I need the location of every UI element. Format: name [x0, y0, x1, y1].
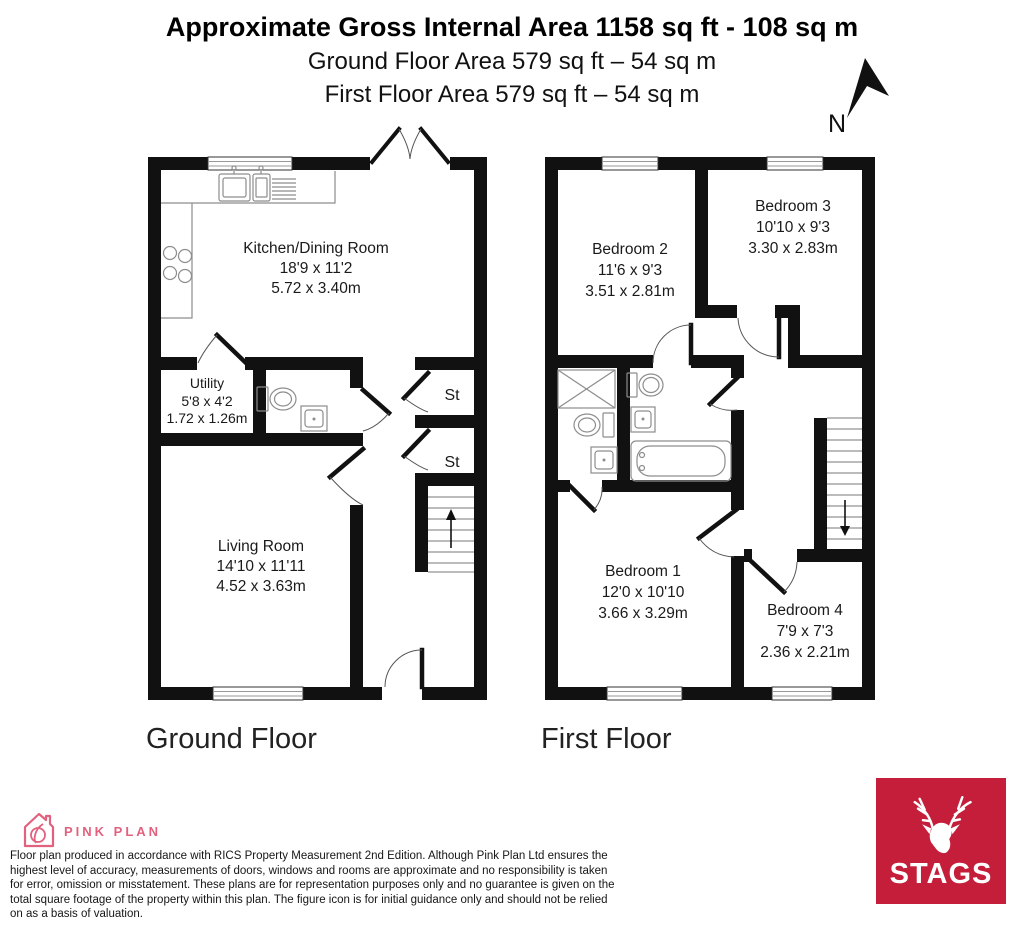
bedroom2-imperial-dims: 11'6 x 9'3 [598, 262, 662, 279]
bedroom2-room-label: Bedroom 2 [592, 241, 668, 258]
stag-head-icon [900, 784, 982, 858]
ground-doors [198, 129, 448, 687]
first-floor-caption: First Floor [541, 723, 672, 755]
shower-icon [558, 370, 615, 408]
bedroom4-room-label: Bedroom 4 [767, 602, 843, 619]
bedroom4-metric-dims: 2.36 x 2.21m [760, 644, 850, 661]
utility-room-label: Utility [190, 375, 224, 391]
disclaimer-text: Floor plan produced in accordance with R… [10, 849, 616, 922]
shower-room-toilet-icon [574, 413, 614, 437]
ground-floor-caption: Ground Floor [146, 723, 317, 755]
kitchen-sink [219, 166, 296, 201]
stags-logo: STAGS [876, 778, 1006, 904]
shower-room-basin-icon [591, 447, 617, 473]
ground-floor-plan: Kitchen/Dining Room 18'9 x 11'2 5.72 x 3… [140, 120, 505, 765]
bedroom3-room-label: Bedroom 3 [755, 198, 831, 215]
bathroom-toilet-icon [627, 373, 663, 397]
bedroom1-room-label: Bedroom 1 [605, 563, 681, 580]
ground-walls [148, 157, 487, 700]
first-floor-plan: Bedroom 2 11'6 x 9'3 3.51 x 2.81m Bedroo… [538, 120, 885, 765]
utility-imperial-dims: 5'8 x 4'2 [181, 393, 232, 409]
pink-plan-brand: PINK PLAN [64, 824, 161, 839]
kitchen-imperial-dims: 18'9 x 11'2 [280, 260, 353, 277]
kitchen-room-label: Kitchen/Dining Room [243, 240, 389, 257]
kitchen-metric-dims: 5.72 x 3.40m [271, 280, 361, 297]
stags-wordmark: STAGS [890, 858, 993, 891]
living-room-label: Living Room [218, 538, 304, 555]
living-metric-dims: 4.52 x 3.63m [216, 578, 306, 595]
pink-plan-house-icon [20, 810, 58, 850]
bedroom4-imperial-dims: 7'9 x 7'3 [777, 623, 834, 640]
ground-stairs [428, 497, 474, 572]
page-title: Approximate Gross Internal Area 1158 sq … [0, 12, 1024, 43]
wc-basin-icon [301, 406, 327, 431]
first-stairs [827, 418, 862, 539]
bedroom3-metric-dims: 3.30 x 2.83m [748, 240, 838, 257]
living-imperial-dims: 14'10 x 11'11 [217, 558, 306, 575]
store2-label: St [444, 454, 460, 471]
bedroom2-metric-dims: 3.51 x 2.81m [585, 283, 675, 300]
store1-label: St [444, 387, 460, 404]
bathtub-icon [631, 441, 731, 481]
bedroom3-imperial-dims: 10'10 x 9'3 [756, 219, 830, 236]
bathroom-basin-icon [631, 407, 655, 432]
bedroom1-metric-dims: 3.66 x 3.29m [598, 605, 688, 622]
bedroom1-imperial-dims: 12'0 x 10'10 [602, 584, 685, 601]
kitchen-hob-icon [164, 247, 192, 283]
floorplan-page: Approximate Gross Internal Area 1158 sq … [0, 0, 1024, 928]
utility-metric-dims: 1.72 x 1.26m [167, 410, 248, 426]
